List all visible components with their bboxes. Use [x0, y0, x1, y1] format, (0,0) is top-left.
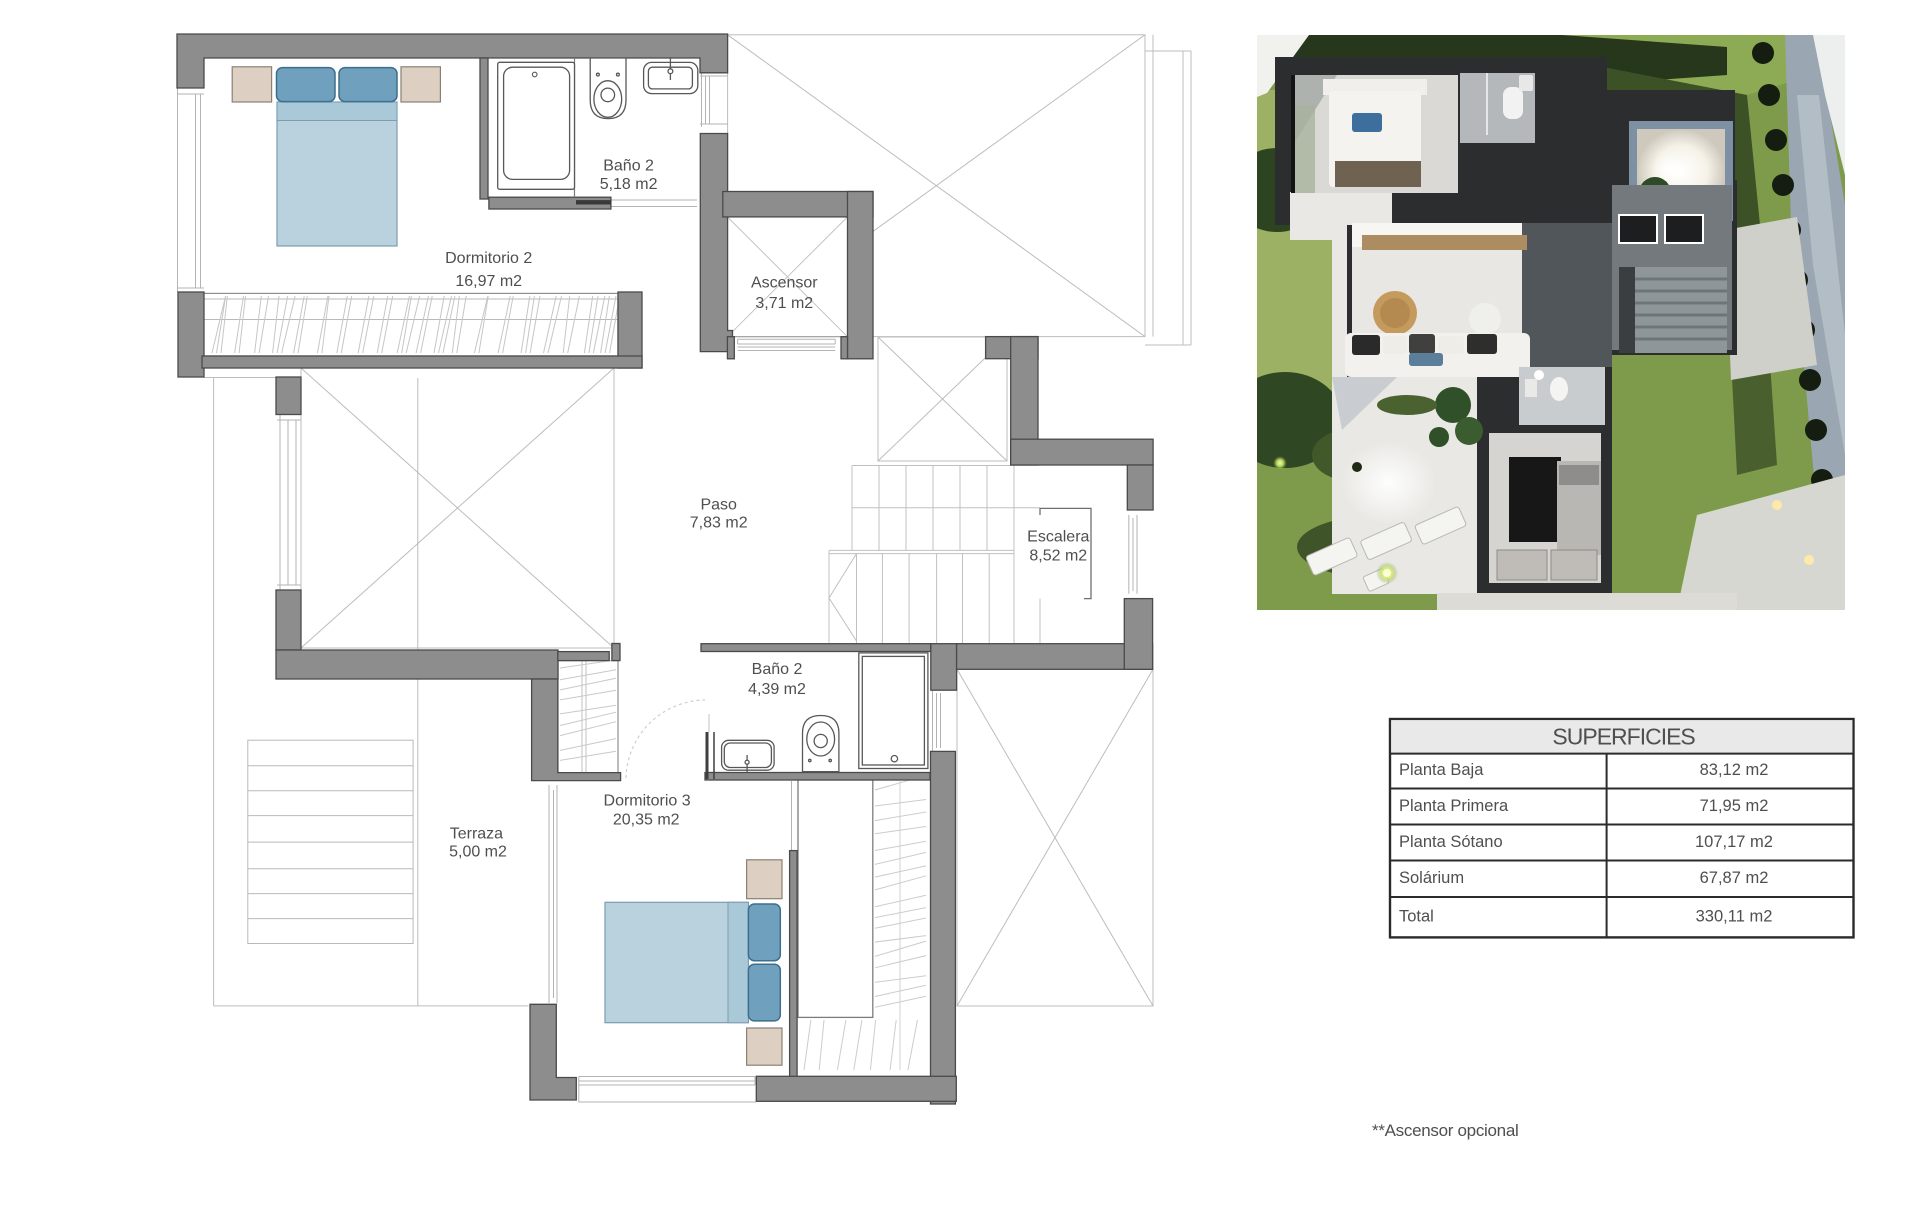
svg-text:Solárium: Solárium	[1399, 869, 1464, 887]
svg-text:Baño 2: Baño 2	[752, 661, 803, 678]
svg-text:Paso: Paso	[700, 496, 737, 513]
svg-text:Planta Baja: Planta Baja	[1399, 761, 1484, 779]
svg-text:3,71 m2: 3,71 m2	[755, 295, 813, 312]
svg-text:71,95 m2: 71,95 m2	[1700, 797, 1769, 815]
svg-text:Dormitorio 3: Dormitorio 3	[604, 793, 691, 810]
svg-text:7,83 m2: 7,83 m2	[690, 514, 748, 531]
svg-text:5,18 m2: 5,18 m2	[600, 176, 658, 193]
svg-text:20,35 m2: 20,35 m2	[613, 812, 680, 829]
svg-text:8,52 m2: 8,52 m2	[1029, 547, 1087, 564]
svg-text:4,39 m2: 4,39 m2	[748, 681, 806, 698]
svg-text:Total: Total	[1399, 908, 1434, 926]
svg-text:Planta Primera: Planta Primera	[1399, 797, 1509, 815]
svg-text:83,12 m2: 83,12 m2	[1700, 761, 1769, 779]
svg-text:Planta Sótano: Planta Sótano	[1399, 833, 1503, 851]
svg-text:330,11 m2: 330,11 m2	[1696, 908, 1773, 926]
svg-text:**Ascensor opcional: **Ascensor opcional	[1372, 1121, 1518, 1140]
svg-text:Terraza: Terraza	[450, 826, 503, 843]
svg-text:5,00 m2: 5,00 m2	[449, 844, 507, 861]
svg-text:Dormitorio 2: Dormitorio 2	[445, 250, 532, 267]
svg-text:SUPERFICIES: SUPERFICIES	[1552, 724, 1695, 750]
svg-text:67,87 m2: 67,87 m2	[1700, 869, 1769, 887]
svg-text:Ascensor: Ascensor	[751, 275, 818, 292]
svg-text:Escalera: Escalera	[1027, 529, 1089, 546]
svg-text:Baño 2: Baño 2	[603, 158, 654, 175]
svg-text:16,97 m2: 16,97 m2	[455, 273, 522, 290]
svg-text:107,17 m2: 107,17 m2	[1695, 833, 1773, 851]
